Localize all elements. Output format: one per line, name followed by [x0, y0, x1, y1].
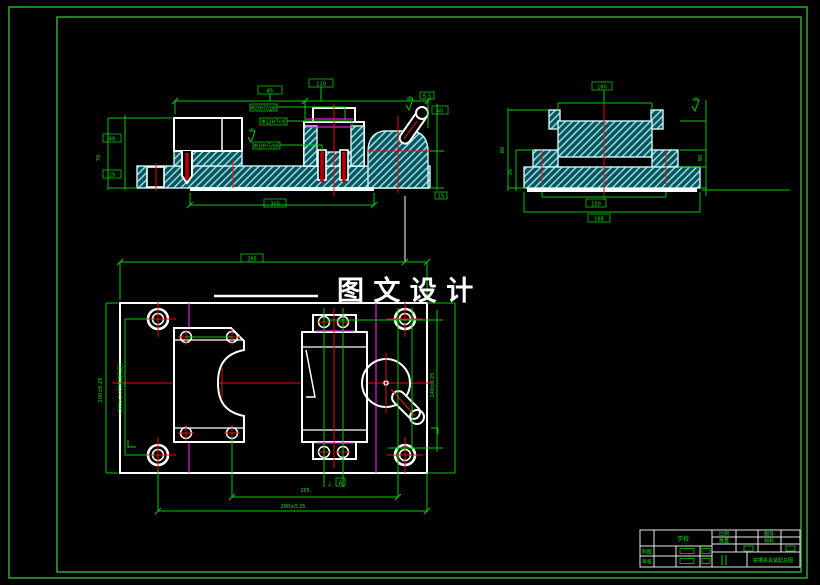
- dim-front-left-upper: 60: [109, 137, 115, 143]
- dim-front-top-right: 120: [316, 82, 326, 88]
- watermark-text: 图 文 设 计: [337, 275, 473, 307]
- dim-front-top-left: 85: [267, 89, 273, 95]
- dim-plan-right: 140±0.25: [430, 373, 436, 398]
- callout-fit-3: Φ10H7/n6: [254, 144, 279, 150]
- perpendicularity-symbol: ⊥: [327, 481, 332, 488]
- cad-viewport[interactable]: 85 120 60 25 70 310 40 15 Φ20H7/g6 Φ12H7…: [0, 0, 820, 585]
- title-block-material-label: 材料: [764, 538, 774, 545]
- side-bottom-strip: [527, 188, 697, 192]
- datum-label: A: [339, 481, 343, 487]
- roughness-value: 6.3: [423, 94, 431, 100]
- title-block-check-label: 审核: [642, 559, 652, 566]
- title-block-draw-label: 制图: [642, 549, 652, 556]
- title-block-scale-label: 比例: [719, 531, 729, 538]
- dim-plan-bottom-outer: 300±0.25: [281, 504, 306, 510]
- dim-front-bottom: 310: [270, 202, 280, 208]
- dim-front-right: 40: [437, 109, 443, 115]
- title-block-no-label: 图号: [764, 532, 774, 538]
- dim-plan-left-inner: 160±0.02(两销孔距): [117, 364, 124, 413]
- dim-side-bottom-outer: 188: [594, 217, 604, 223]
- dim-side-left-outer: 80: [500, 147, 506, 153]
- dim-side-top: 160: [597, 85, 607, 91]
- title-block-drawing-title: 铣槽夹具装配总图: [753, 557, 793, 564]
- dim-side-bottom-inner: 150: [591, 202, 601, 208]
- dim-front-left-outer: 70: [96, 155, 102, 161]
- dim-front-left-lower: 25: [109, 173, 115, 179]
- dim-side-left-inner: 35: [508, 169, 514, 175]
- dim-plan-top: 285: [247, 257, 257, 263]
- dim-plan-bottom-inner: 255: [300, 488, 310, 494]
- dim-front-right-small: 15: [438, 194, 444, 200]
- callout-fit-1: Φ20H7/g6: [251, 106, 276, 112]
- plan-view: [112, 301, 443, 497]
- base-bottom-strip: [190, 187, 374, 191]
- title-block-school: 学校: [677, 535, 689, 543]
- title-block-qty-label: 数量: [719, 538, 729, 545]
- callout-fit-2: Φ12H7/r6: [261, 120, 285, 126]
- dim-side-right: 90: [698, 155, 704, 161]
- dim-plan-left-outer: 200±0.25: [98, 378, 104, 403]
- drawing-canvas[interactable]: 85 120 60 25 70 310 40 15 Φ20H7/g6 Φ12H7…: [0, 0, 820, 585]
